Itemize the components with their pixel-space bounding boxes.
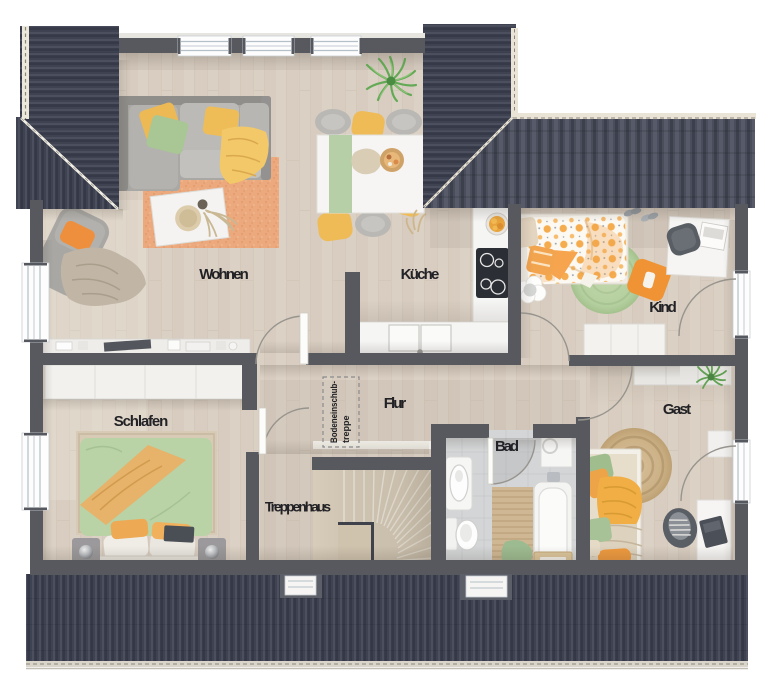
svg-text:Treppenhaus: Treppenhaus bbox=[265, 499, 331, 515]
svg-text:Wohnen: Wohnen bbox=[199, 266, 249, 283]
svg-text:treppe: treppe bbox=[341, 415, 351, 443]
svg-text:Gast: Gast bbox=[663, 401, 691, 418]
svg-text:Flur: Flur bbox=[384, 395, 407, 412]
svg-text:Bad: Bad bbox=[495, 438, 519, 455]
svg-text:Schlafen: Schlafen bbox=[114, 413, 169, 430]
svg-text:Kind: Kind bbox=[649, 299, 677, 316]
svg-text:Bodeneinschub-: Bodeneinschub- bbox=[329, 381, 339, 443]
svg-text:Küche: Küche bbox=[401, 266, 440, 283]
